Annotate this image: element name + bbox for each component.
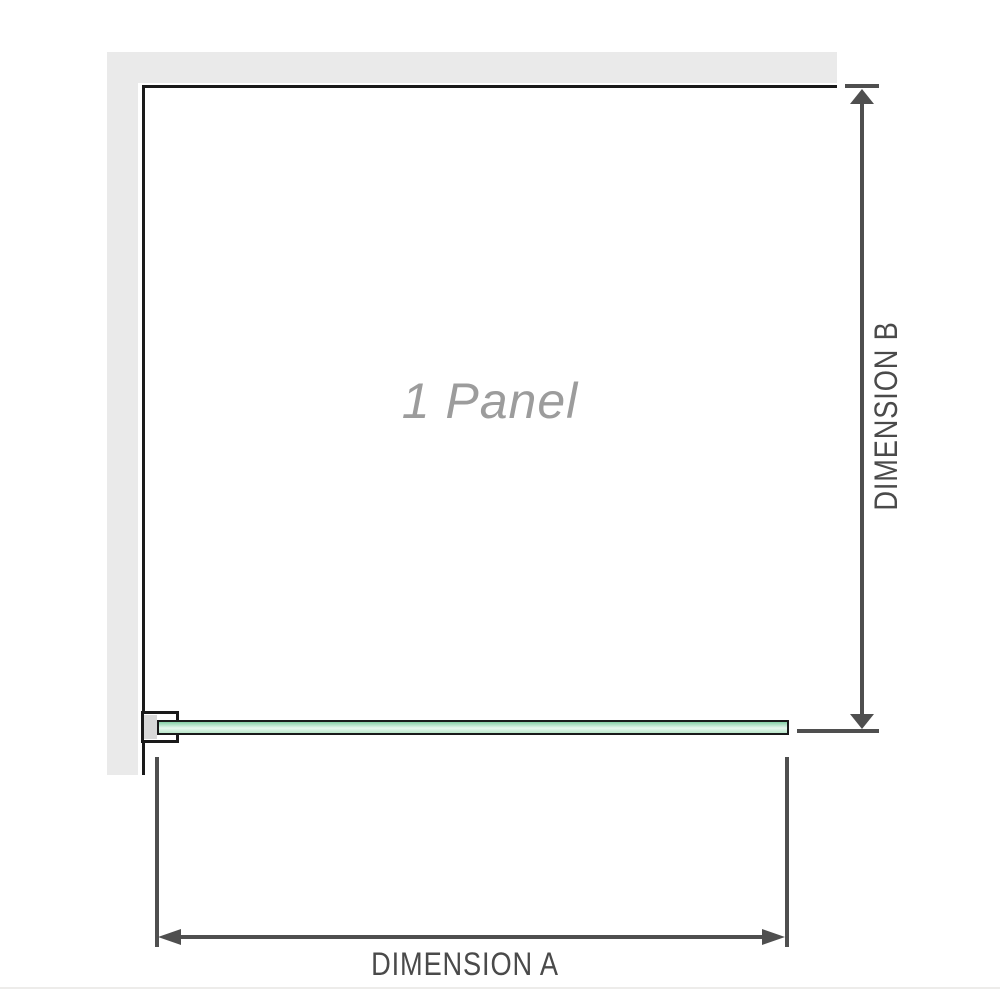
bracket-pad (144, 715, 157, 739)
wall-top (107, 52, 837, 83)
dimension-b-label: DIMENSION B (866, 297, 906, 535)
dimension-b-tick-bottom (797, 729, 879, 733)
dimension-b-arrow-up-icon (850, 89, 874, 104)
dimension-b-line (860, 96, 864, 722)
dimension-a-extension-right (785, 757, 789, 947)
panel-outline (142, 85, 837, 775)
wall-left (107, 52, 138, 775)
glass-panel (157, 720, 789, 735)
dimension-a-arrow-right-icon (762, 929, 785, 945)
dimension-b-arrow-down-icon (850, 714, 874, 729)
dimension-diagram: 1 Panel DIMENSION B DIMENSION A (0, 0, 1000, 1000)
dimension-a-arrow-left-icon (158, 929, 181, 945)
dimension-b-tick-top (845, 84, 879, 88)
dimension-a-extension-left (155, 757, 159, 947)
bottom-edge-line (0, 987, 1000, 989)
dimension-a-line (170, 935, 775, 939)
dimension-a-label: DIMENSION A (210, 946, 720, 982)
panel-label: 1 Panel (143, 372, 837, 430)
